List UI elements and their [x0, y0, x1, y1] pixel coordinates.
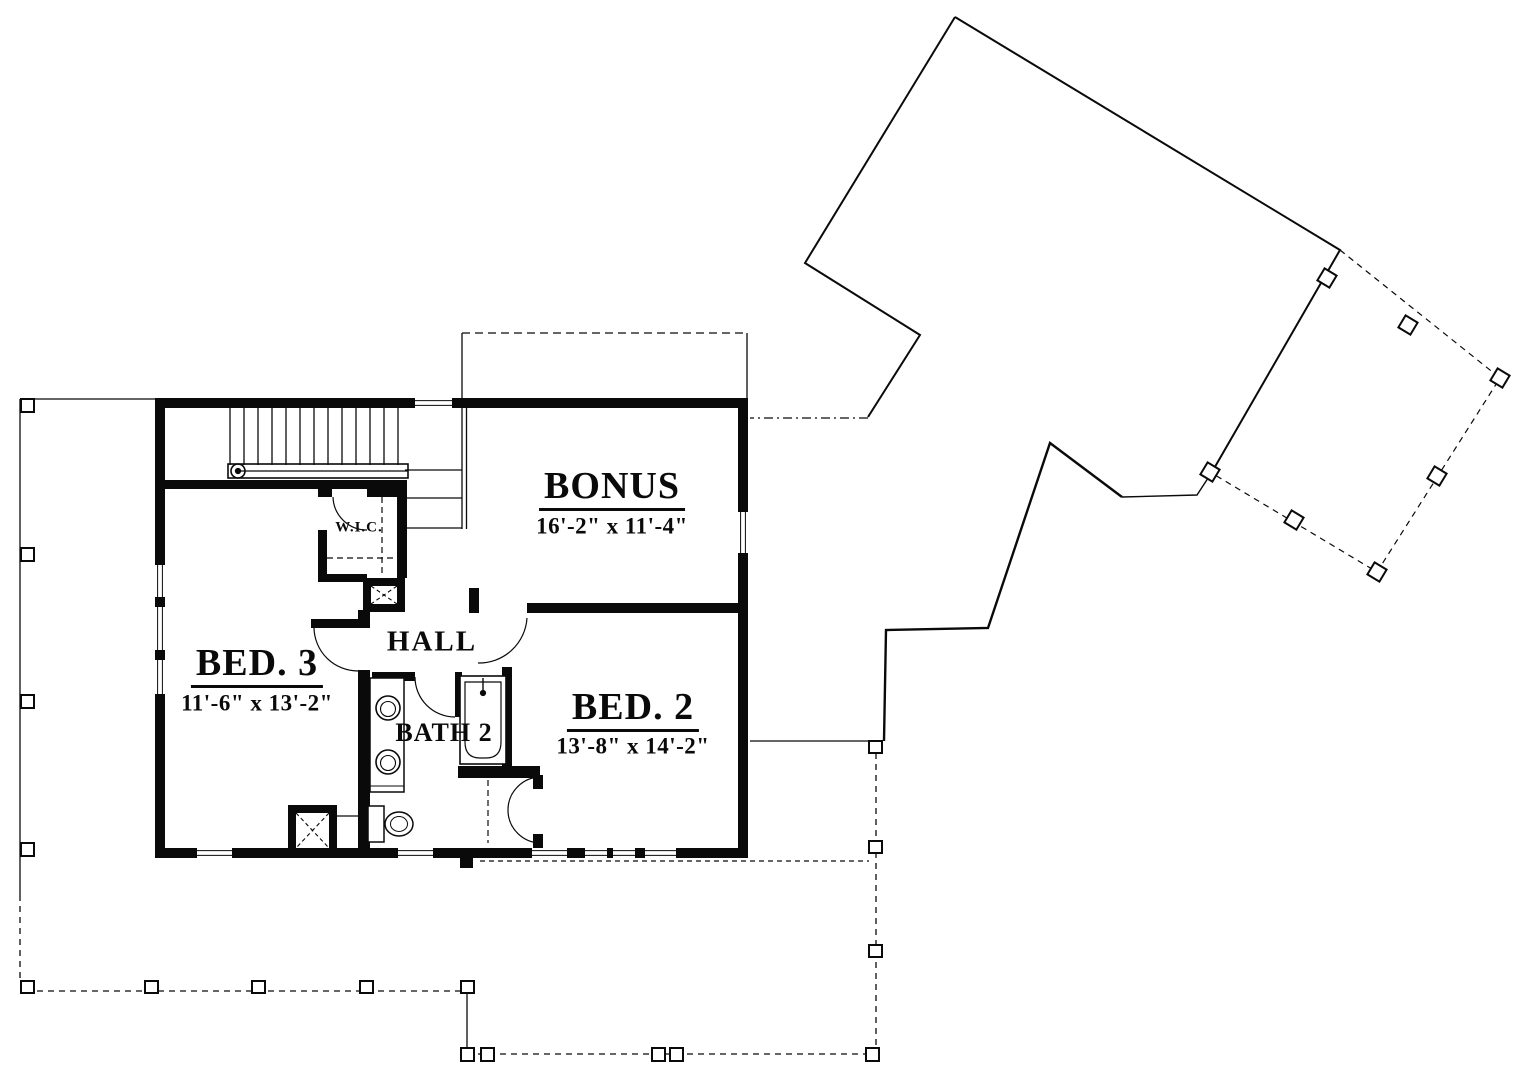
window-right-bonus [738, 512, 748, 553]
deck-pier [460, 856, 473, 868]
rotated-porch-outline [1210, 250, 1500, 572]
window-top [415, 398, 452, 408]
floor-plan-canvas: BONUS 16'-2" x 11'-4" BED. 3 11'-6" x 13… [0, 0, 1524, 1088]
room-dims-bed3: 11'-6" x 13'-2" [181, 692, 333, 715]
roof-outline [750, 17, 1340, 741]
stair-railing [228, 464, 408, 478]
stair-landing-steps [405, 470, 462, 528]
toilet [368, 806, 413, 842]
toilet-tank [368, 806, 384, 842]
room-dims-bonus: 16'-2" x 11'-4" [536, 515, 688, 538]
bed2-door-swing [478, 618, 527, 663]
room-label-hall: HALL [387, 628, 477, 657]
deck-outline [467, 741, 876, 1054]
room-label-bed3: BED. 3 [191, 644, 323, 688]
stairwell-edge [462, 408, 467, 529]
staircase [228, 408, 467, 529]
bath2-door-swing [415, 677, 455, 717]
room-label-bonus: BONUS [539, 467, 685, 511]
bonus-dormer-outline [462, 333, 747, 398]
room-label-bed2: BED. 2 [567, 688, 699, 732]
room-label-bath2: BATH 2 [395, 720, 492, 746]
wall-below-stairs [155, 480, 407, 489]
room-dims-bed2: 13'-8" x 14'-2" [556, 735, 709, 758]
stair-treads [230, 408, 398, 465]
window-left-triple [155, 565, 165, 694]
floor-plan-drawing [0, 0, 1524, 1088]
room-label-wic: W.I.C. [335, 521, 383, 536]
